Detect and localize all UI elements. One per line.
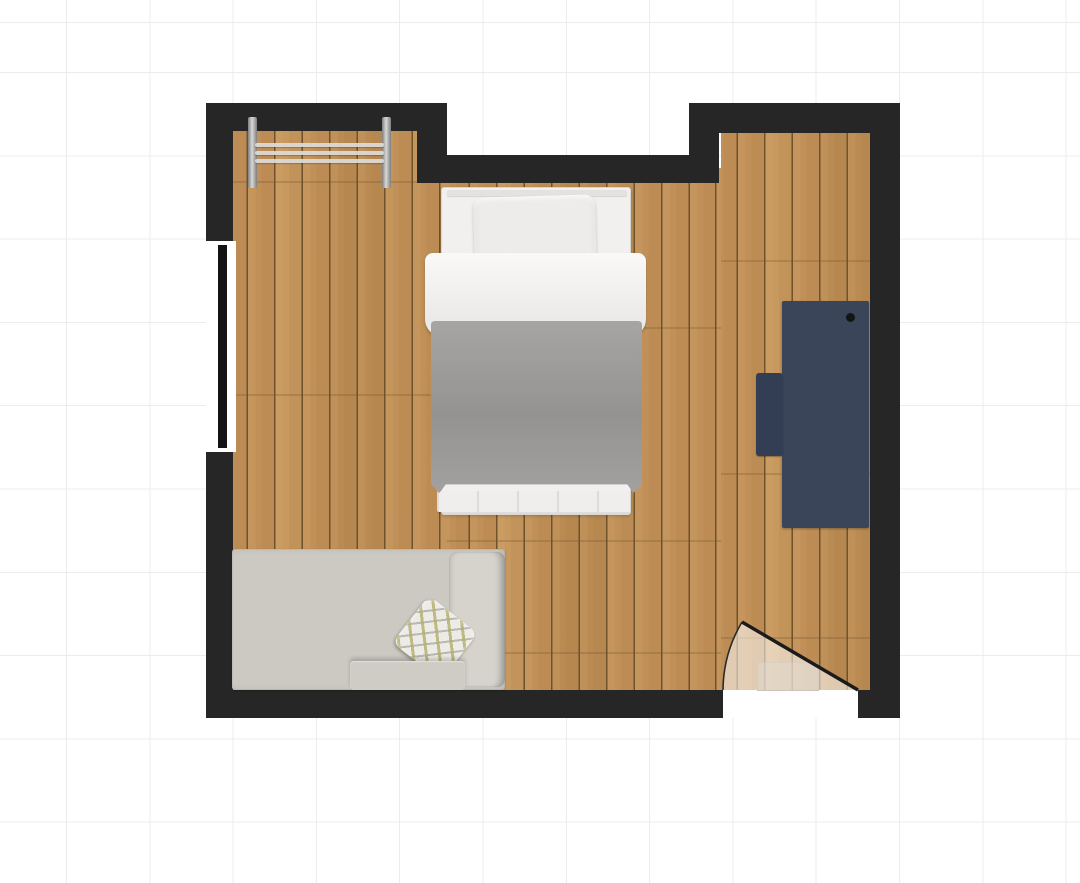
window-glass: [218, 245, 227, 448]
sofa-seat-cushion: [350, 661, 465, 690]
clothes-rack[interactable]: [248, 117, 391, 188]
wall-top-right: [689, 103, 900, 133]
rack-rail: [255, 151, 384, 155]
canvas: [0, 0, 1080, 883]
wall-right: [870, 103, 900, 718]
bed-footboard: [437, 491, 630, 512]
rack-rail: [255, 159, 384, 163]
single-bed[interactable]: [424, 186, 660, 518]
rack-rail: [255, 143, 384, 147]
sofa[interactable]: [232, 549, 505, 690]
desk[interactable]: [782, 301, 869, 528]
desk-knob: [846, 313, 855, 322]
desk-chair[interactable]: [756, 373, 783, 456]
bed-duvet: [431, 321, 642, 493]
window[interactable]: [206, 241, 236, 452]
door-opening[interactable]: [723, 690, 858, 718]
door-swing[interactable]: [718, 614, 864, 694]
wall-alcove-back: [443, 155, 719, 183]
